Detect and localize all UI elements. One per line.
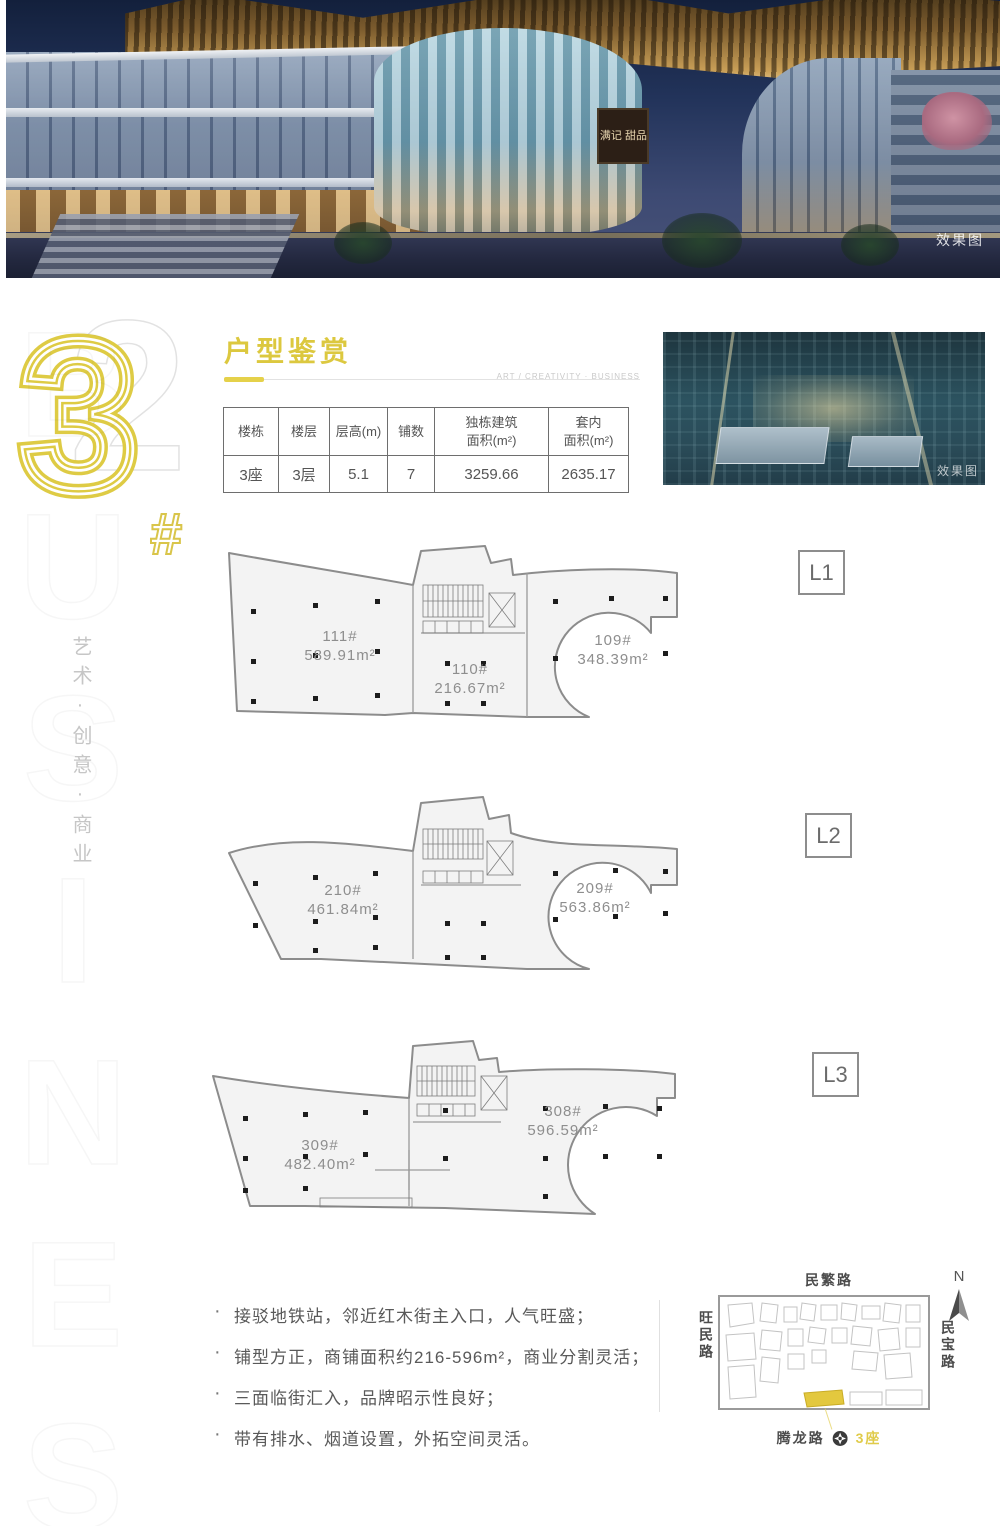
north-arrow-icon bbox=[947, 1287, 971, 1323]
unit-id: 308# bbox=[544, 1103, 581, 1120]
hero-right-building bbox=[742, 58, 901, 233]
spec-header: 楼层 bbox=[279, 408, 330, 456]
location-map: 民繁路 旺民路 民宝路 bbox=[700, 1262, 958, 1462]
hero-tree bbox=[662, 213, 742, 268]
city-blocks bbox=[726, 1303, 922, 1407]
metro-icon bbox=[833, 1431, 848, 1446]
road-label-top: 民繁路 bbox=[805, 1270, 853, 1290]
spec-header: 铺数 bbox=[388, 408, 435, 456]
spec-cell: 3座 bbox=[224, 456, 279, 493]
feature-item: 接驳地铁站，邻近红木街主入口，人气旺盛； bbox=[212, 1302, 657, 1327]
aerial-photo: 效果图 bbox=[663, 332, 985, 485]
hero-tree bbox=[841, 224, 899, 266]
section-title: 户型鉴赏 bbox=[224, 330, 352, 370]
aerial-render-label: 效果图 bbox=[937, 462, 979, 479]
spec-cell: 2635.17 bbox=[549, 456, 629, 493]
map-legend: 腾龙路 3座 bbox=[777, 1428, 882, 1448]
unit-id: 210# bbox=[324, 882, 361, 899]
map-canvas bbox=[718, 1295, 930, 1410]
spec-header: 独栋建筑 面积(m²) bbox=[435, 408, 549, 456]
vertical-divider bbox=[659, 1300, 660, 1412]
aerial-mall-block bbox=[848, 436, 923, 467]
unit-id: 109# bbox=[594, 632, 631, 649]
feature-item: 带有排水、烟道设置，外拓空间灵活。 bbox=[212, 1425, 657, 1450]
spec-header: 楼栋 bbox=[224, 408, 279, 456]
unit-area: 589.91m² bbox=[304, 647, 375, 664]
spec-data-row: 3座 3层 5.1 7 3259.66 2635.17 bbox=[224, 456, 629, 493]
unit-area: 348.39m² bbox=[577, 651, 648, 668]
unit-id: 110# bbox=[452, 661, 488, 678]
unit-area: 596.59m² bbox=[527, 1122, 598, 1139]
site-label: 3座 bbox=[856, 1428, 882, 1448]
hero-photo: 满记 甜品 效果图 bbox=[6, 0, 1000, 278]
road-label-bottom: 腾龙路 bbox=[777, 1428, 825, 1448]
level-label-l2: L2 bbox=[805, 813, 852, 858]
section-divider-accent bbox=[224, 377, 264, 382]
unit-area: 563.86m² bbox=[559, 899, 630, 916]
hero-stairs bbox=[32, 214, 299, 278]
spec-header: 层高(m) bbox=[330, 408, 388, 456]
level-label-l1: L1 bbox=[798, 550, 845, 595]
unit-area: 216.67m² bbox=[434, 680, 505, 697]
hero-pink-tree bbox=[922, 92, 992, 150]
vertical-slogan: 艺术·创意·商业 bbox=[66, 636, 95, 872]
unit-id: 309# bbox=[301, 1137, 338, 1154]
brochure-page: 满记 甜品 效果图 2 3 3 3 # BUSINESS 艺术·创意·商业 户型… bbox=[0, 0, 1000, 1526]
spec-header-row: 楼栋 楼层 层高(m) 铺数 独栋建筑 面积(m²) 套内 面积(m²) bbox=[224, 408, 629, 456]
hero-render-label: 效果图 bbox=[936, 230, 984, 250]
road-label-left: 旺民路 bbox=[696, 1310, 716, 1361]
hero-shop-sign: 满记 甜品 bbox=[597, 108, 649, 164]
floorplan-l1: 111# 589.91m² 110# 216.67m² 109# 348.39m… bbox=[225, 543, 690, 725]
unit-area: 482.40m² bbox=[284, 1156, 355, 1173]
unit-id: 209# bbox=[576, 880, 613, 897]
spec-cell: 7 bbox=[388, 456, 435, 493]
feature-item: 三面临街汇入，品牌昭示性良好； bbox=[212, 1384, 657, 1409]
spec-cell: 3259.66 bbox=[435, 456, 549, 493]
spec-table: 楼栋 楼层 层高(m) 铺数 独栋建筑 面积(m²) 套内 面积(m²) 3座 … bbox=[223, 407, 629, 493]
business-watermark: BUSINESS bbox=[0, 300, 159, 1526]
spec-cell: 3层 bbox=[279, 456, 330, 493]
hero-tree bbox=[334, 222, 392, 264]
aerial-mall-block bbox=[715, 427, 830, 464]
spec-header: 套内 面积(m²) bbox=[549, 408, 629, 456]
floorplan-l2: 210# 461.84m² 209# 563.86m² bbox=[225, 793, 690, 978]
floorplan-l3: 309# 482.40m² 308# 596.59m² bbox=[205, 1038, 690, 1220]
level-label-l3: L3 bbox=[812, 1052, 859, 1097]
feature-list: 接驳地铁站，邻近红木街主入口，人气旺盛； 铺型方正，商铺面积约216-596m²… bbox=[212, 1302, 657, 1466]
north-indicator: N bbox=[944, 1268, 974, 1328]
unit-area: 461.84m² bbox=[307, 901, 378, 918]
unit-id: 111# bbox=[322, 628, 357, 645]
feature-item: 铺型方正，商铺面积约216-596m²，商业分割灵活； bbox=[212, 1343, 657, 1368]
plan-outline bbox=[213, 1041, 675, 1214]
spec-cell: 5.1 bbox=[330, 456, 388, 493]
north-letter: N bbox=[944, 1268, 974, 1285]
section-tagline: ART / CREATIVITY · BUSINESS bbox=[470, 372, 640, 381]
